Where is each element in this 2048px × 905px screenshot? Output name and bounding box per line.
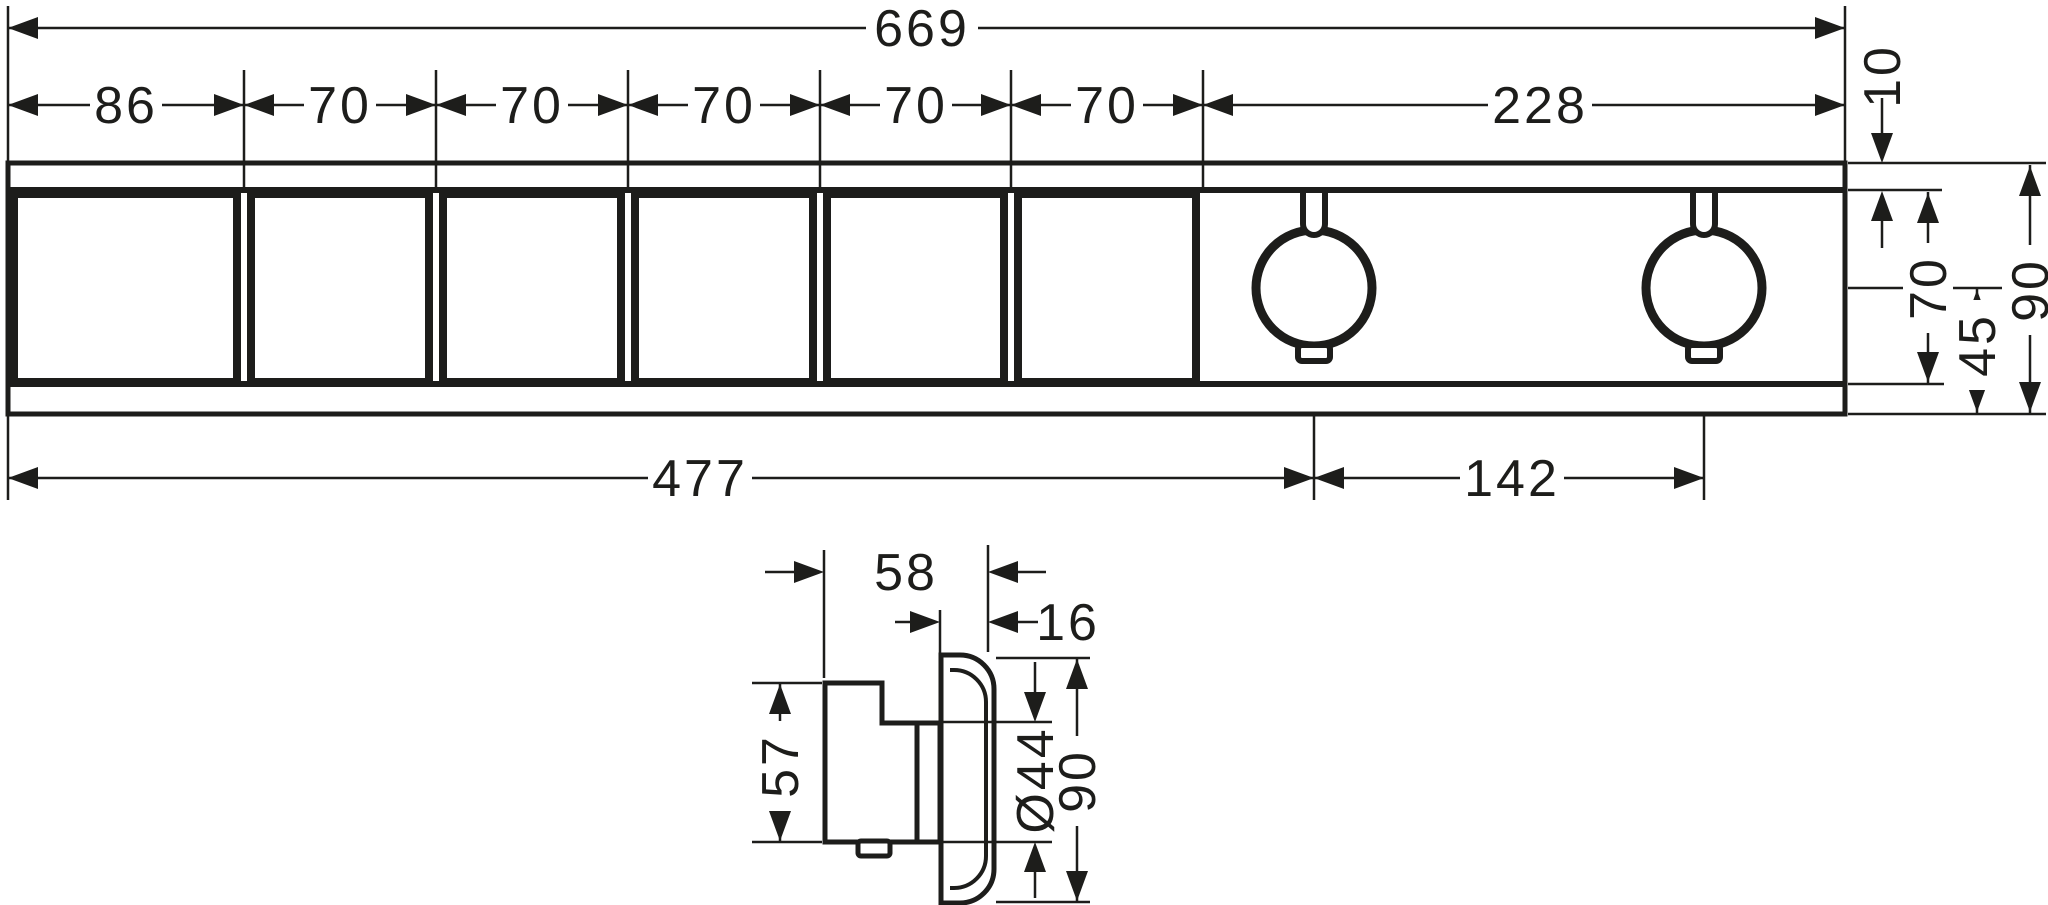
dimension-drawing: 669 86 70 70 70 70 70 228 477 142 58 16 … (0, 0, 2048, 905)
dim-segment-1: 86 (94, 77, 158, 135)
thermostat-knob-1 (1256, 230, 1372, 346)
dim-handle-height: 57 (752, 734, 810, 798)
knob-2-tab (1688, 345, 1720, 361)
dim-left-to-knob1: 477 (652, 450, 748, 508)
dim-overall-width: 669 (874, 0, 970, 58)
dim-body-height: 70 (1900, 256, 1958, 320)
dim-total-height: 90 (2002, 258, 2048, 322)
select-button-4 (635, 194, 813, 382)
dim-segment-6: 70 (1075, 77, 1139, 135)
dim-projection: 58 (874, 544, 938, 602)
dim-top-strip: 10 (1854, 44, 1912, 108)
dim-segment-4: 70 (692, 77, 756, 135)
knob-2-stem (1693, 191, 1715, 235)
select-button-5 (827, 194, 1004, 382)
dim-segment-5: 70 (884, 77, 948, 135)
select-button-1 (14, 194, 237, 382)
dim-knob-center-to-bottom: 45 (1949, 313, 2007, 377)
dim-segment-7: 228 (1492, 77, 1588, 135)
dim-plate-height: 90 (1049, 749, 1107, 813)
select-button-6 (1018, 194, 1196, 382)
side-view (825, 655, 994, 903)
technical-drawing-page: 669 86 70 70 70 70 70 228 477 142 58 16 … (0, 0, 2048, 905)
front-view (8, 163, 1845, 414)
select-button-3 (443, 194, 621, 382)
handle-profile (825, 683, 940, 842)
knob-1-tab (1298, 345, 1330, 361)
handle-tab (858, 841, 890, 856)
knob-1-stem (1303, 191, 1325, 235)
select-button-2 (251, 194, 429, 382)
dim-segment-3: 70 (500, 77, 564, 135)
dim-knob-spacing: 142 (1464, 450, 1560, 508)
dim-plate-thickness: 16 (1036, 594, 1100, 652)
thermostat-knob-2 (1646, 230, 1762, 346)
dim-segment-2: 70 (308, 77, 372, 135)
